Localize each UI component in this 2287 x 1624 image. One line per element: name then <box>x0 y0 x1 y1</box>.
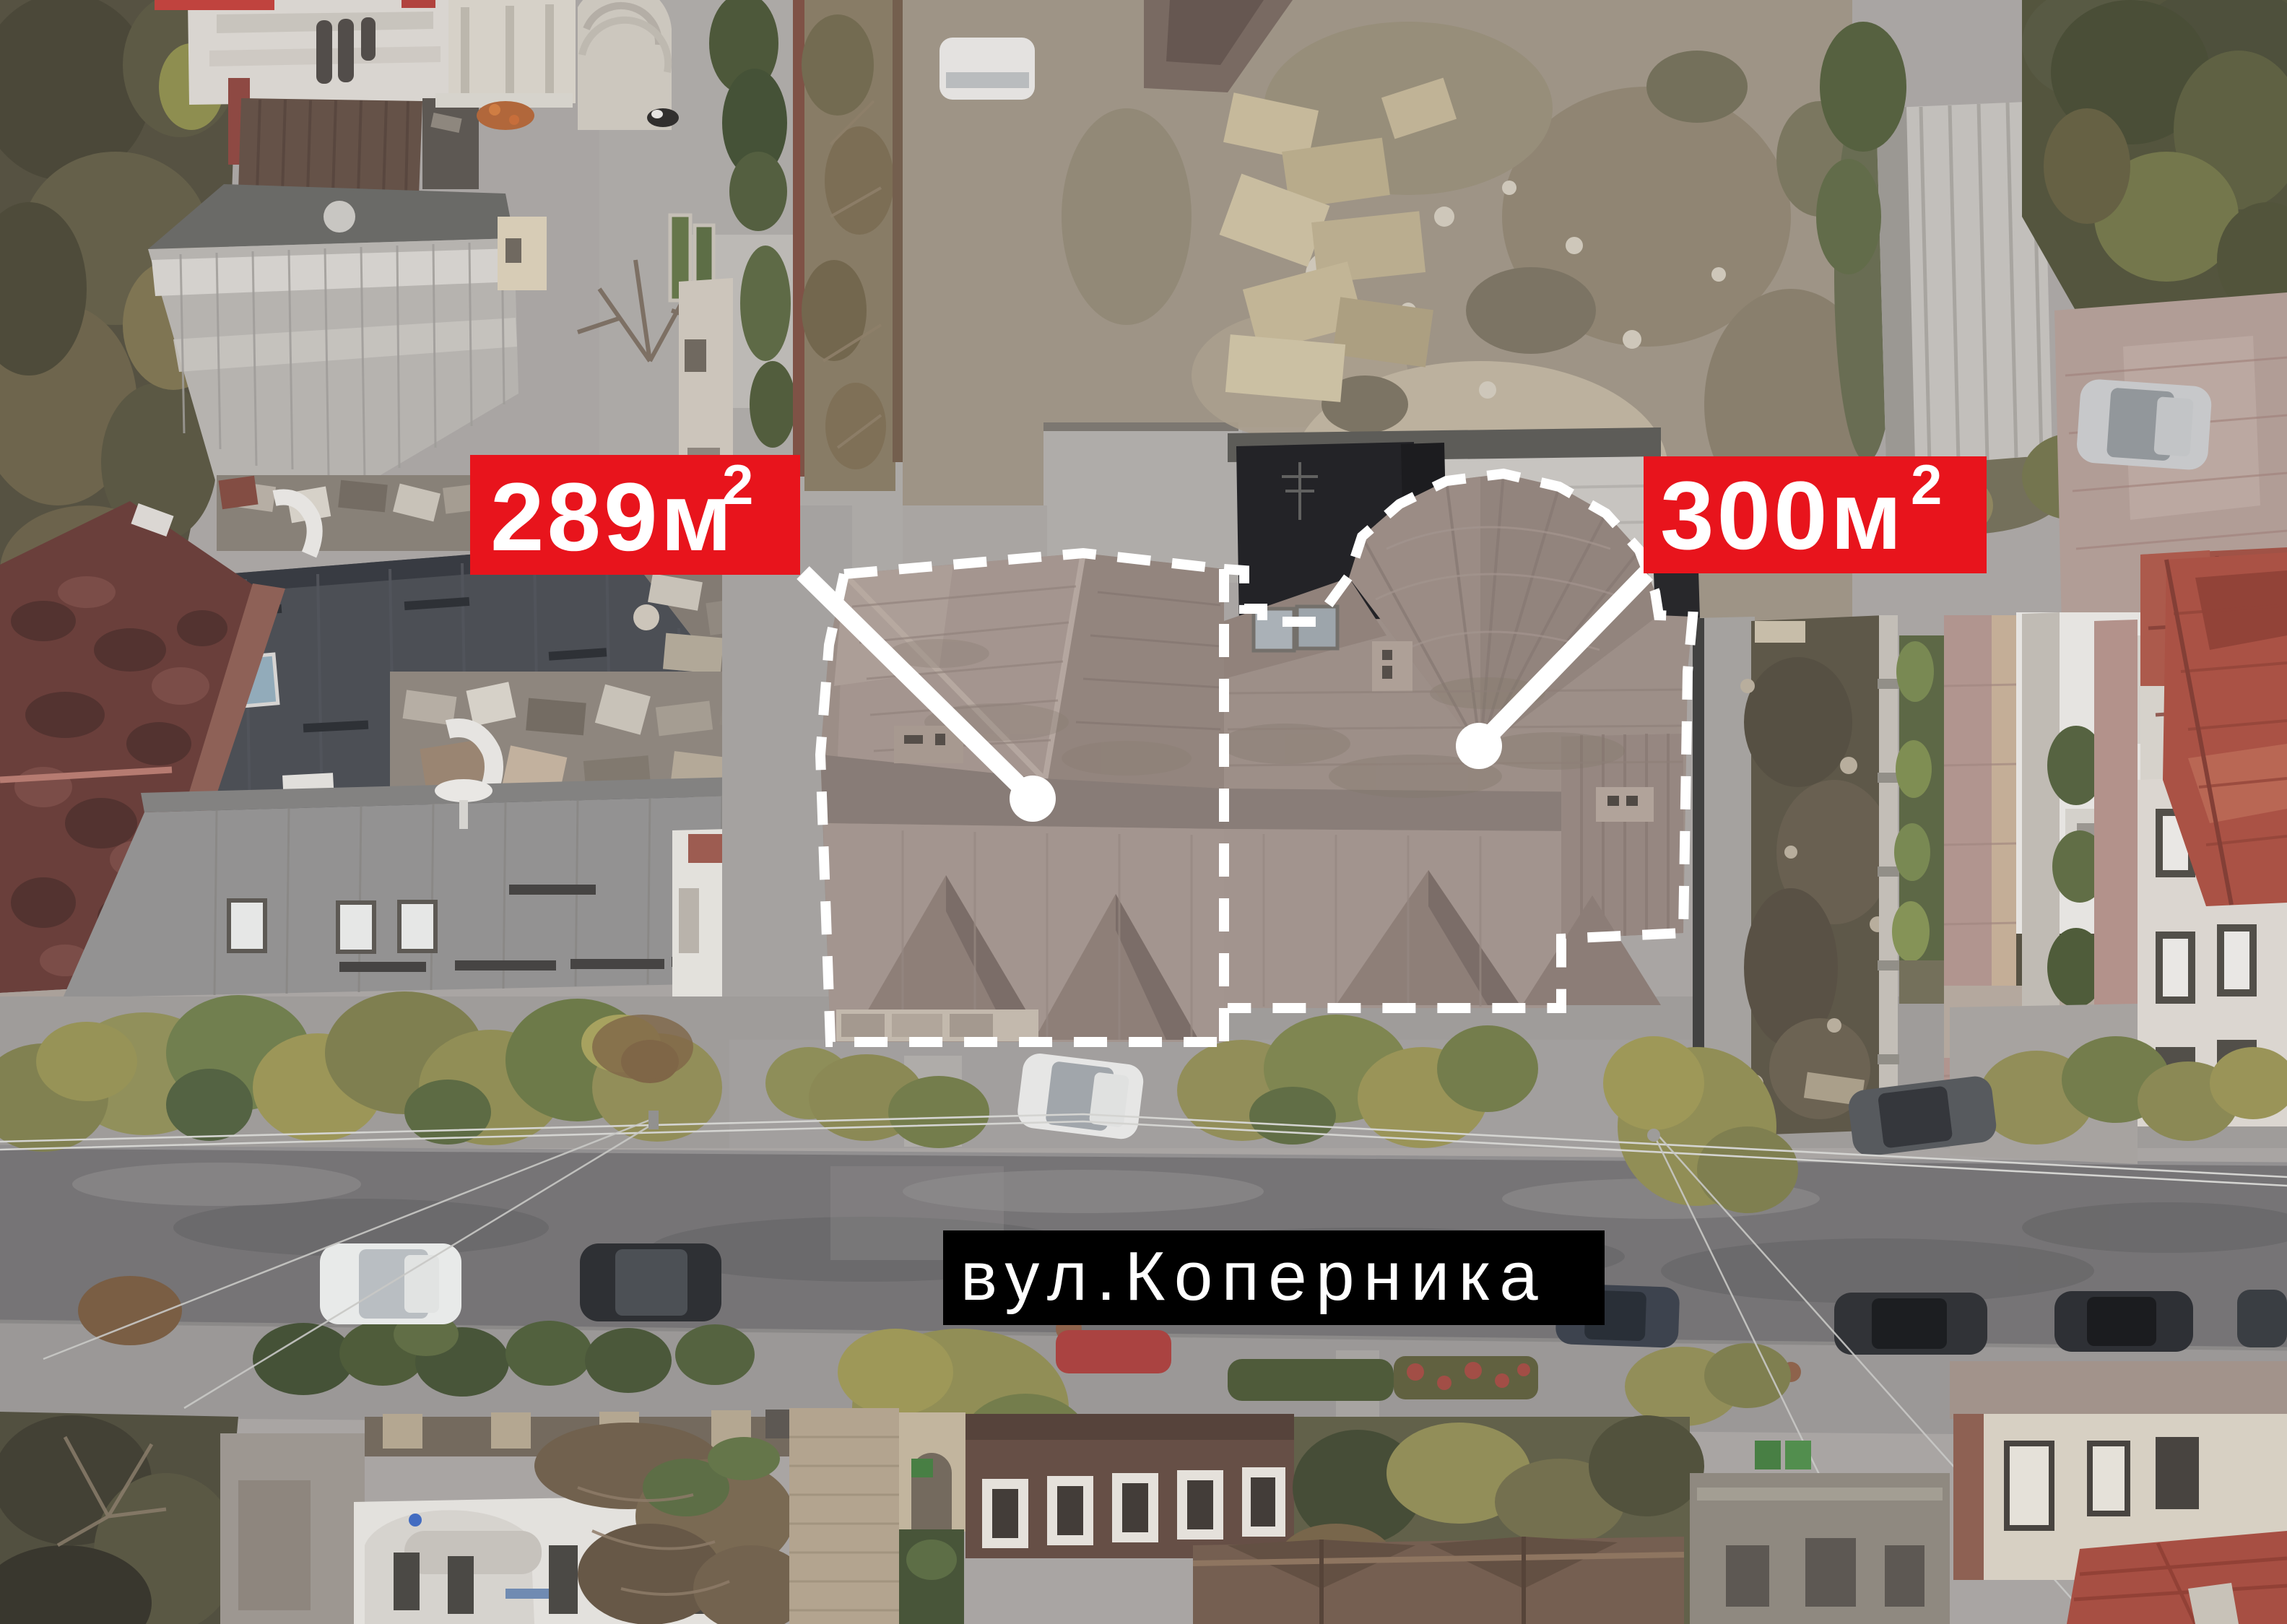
svg-text:вул.Коперника: вул.Коперника <box>960 1238 1547 1315</box>
svg-text:300м: 300м <box>1660 462 1905 570</box>
svg-text:2: 2 <box>1911 453 1942 516</box>
svg-text:289м: 289м <box>490 464 735 571</box>
svg-text:2: 2 <box>722 453 753 516</box>
